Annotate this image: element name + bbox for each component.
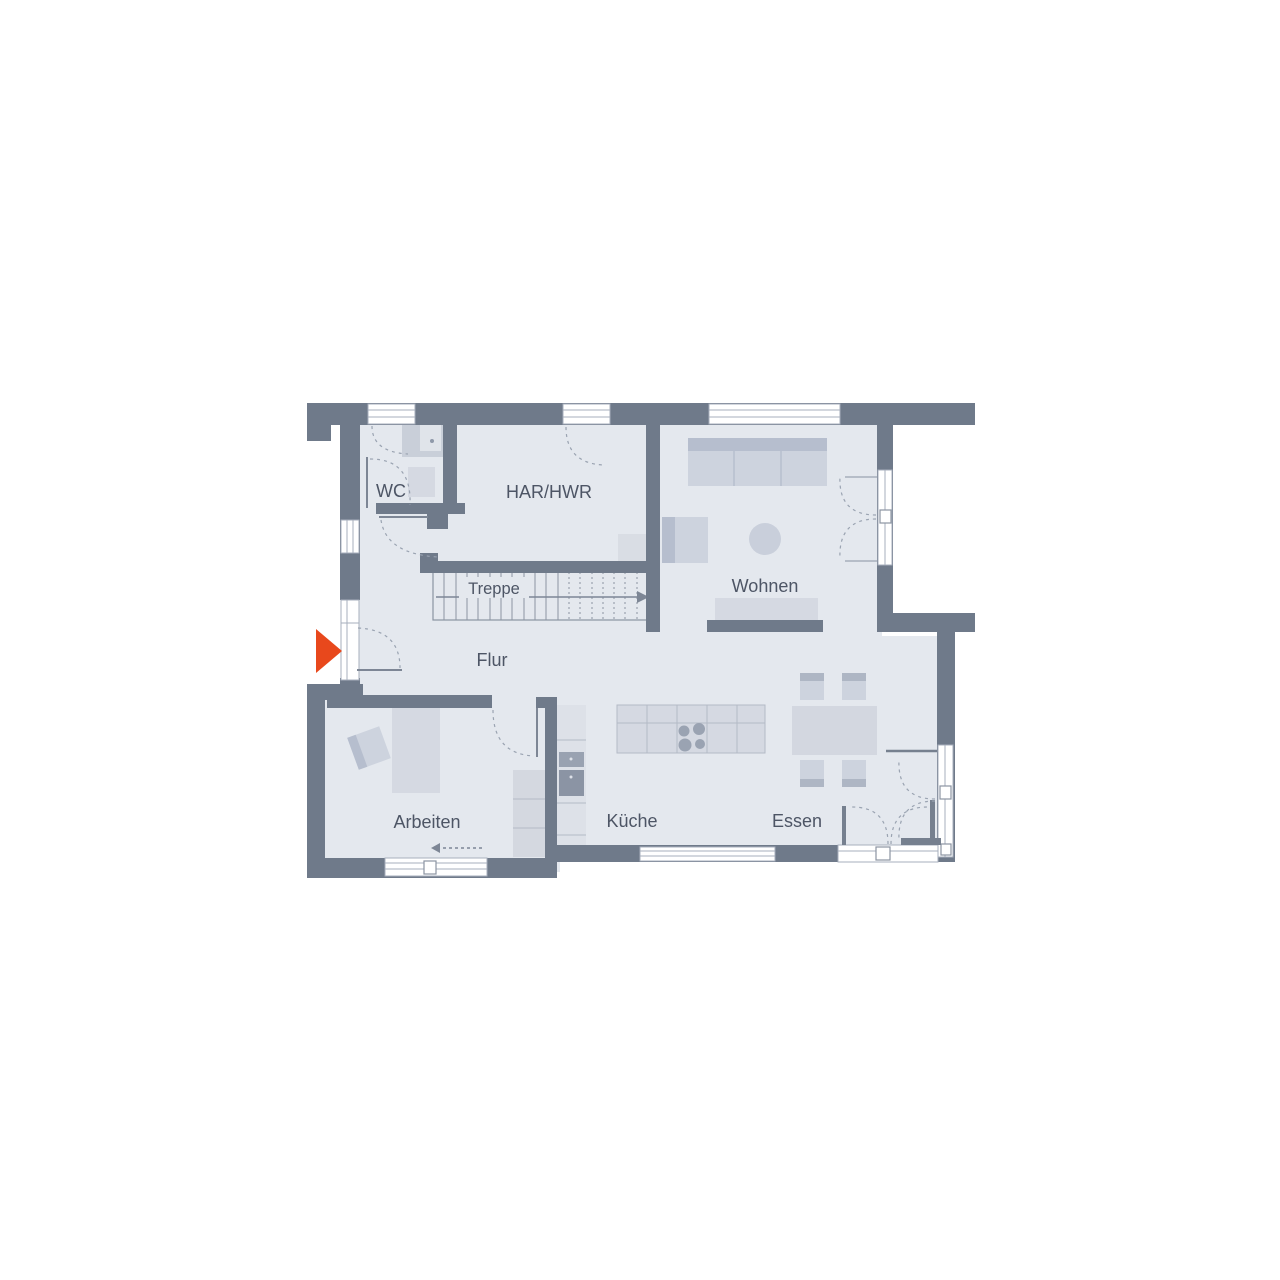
wall-arbeiten-top xyxy=(327,695,492,708)
wc-toilet xyxy=(408,467,435,497)
wall-arbeiten-kueche xyxy=(545,700,557,862)
door-jamb xyxy=(842,806,846,845)
entry-door-opening xyxy=(341,623,359,680)
dining-table xyxy=(792,706,877,755)
dining-chair-back xyxy=(842,673,866,681)
floor-plan-canvas: Floor plan ground floor WCHAR/HWRTreppeW… xyxy=(0,0,1280,1280)
dining-chair-back xyxy=(842,779,866,787)
sofa-seat xyxy=(688,451,827,486)
window-left-small xyxy=(341,520,359,553)
armchair-seat xyxy=(675,517,708,563)
hob-burner xyxy=(695,739,705,749)
wall-left-upper xyxy=(340,425,360,600)
wall-tv xyxy=(707,620,823,632)
window-handle xyxy=(876,847,890,860)
hob-burner xyxy=(679,726,690,737)
room-label-kueche: Küche xyxy=(606,811,657,831)
dining-chair-back xyxy=(800,673,824,681)
wall-wc-right xyxy=(443,425,457,503)
window-wohnen-top xyxy=(709,404,840,424)
hob-burner xyxy=(693,723,705,735)
room-label-flur: Flur xyxy=(477,650,508,670)
door-jamb xyxy=(930,800,935,843)
room-label-wohnen: Wohnen xyxy=(732,576,799,596)
wall-top-left-cap xyxy=(307,425,331,441)
desk xyxy=(392,708,440,793)
armchair-back xyxy=(662,517,675,563)
wall-stairs-top xyxy=(420,561,660,573)
oven-knob xyxy=(570,758,573,761)
window-handle xyxy=(424,861,436,874)
wc-tap xyxy=(430,439,434,443)
entry-sidelight xyxy=(341,600,359,623)
coffee-table xyxy=(749,523,781,555)
oven-lower xyxy=(559,770,584,796)
window-har xyxy=(563,404,610,424)
oven-knob xyxy=(570,776,573,779)
room-label-wc: WC xyxy=(376,481,406,501)
sofa-back xyxy=(688,438,827,451)
wall-arbeiten-left xyxy=(307,700,325,878)
room-label-arbeiten: Arbeiten xyxy=(393,812,460,832)
floor-plan: WCHAR/HWRTreppeWohnenFlurArbeitenKücheEs… xyxy=(300,395,980,890)
office-shelf xyxy=(513,770,545,857)
door-jamb xyxy=(901,838,941,845)
window-handle xyxy=(940,786,951,799)
room-label-essen: Essen xyxy=(772,811,822,831)
sideboard xyxy=(715,598,818,620)
window-handle xyxy=(880,510,891,523)
window-handle xyxy=(941,844,951,855)
wc-washbasin-bowl xyxy=(420,425,441,451)
window-wc xyxy=(368,404,415,424)
room-label-har-hwr: HAR/HWR xyxy=(506,482,592,502)
wall-wc-bottom xyxy=(376,503,465,514)
wall-har-jamb xyxy=(427,514,448,529)
entry-arrow xyxy=(316,629,342,673)
wall-wohnen-left xyxy=(646,425,660,632)
room-label-treppe: Treppe xyxy=(468,580,520,598)
window-kueche xyxy=(640,847,775,861)
hob-burner xyxy=(679,739,692,752)
dining-chair-back xyxy=(800,779,824,787)
